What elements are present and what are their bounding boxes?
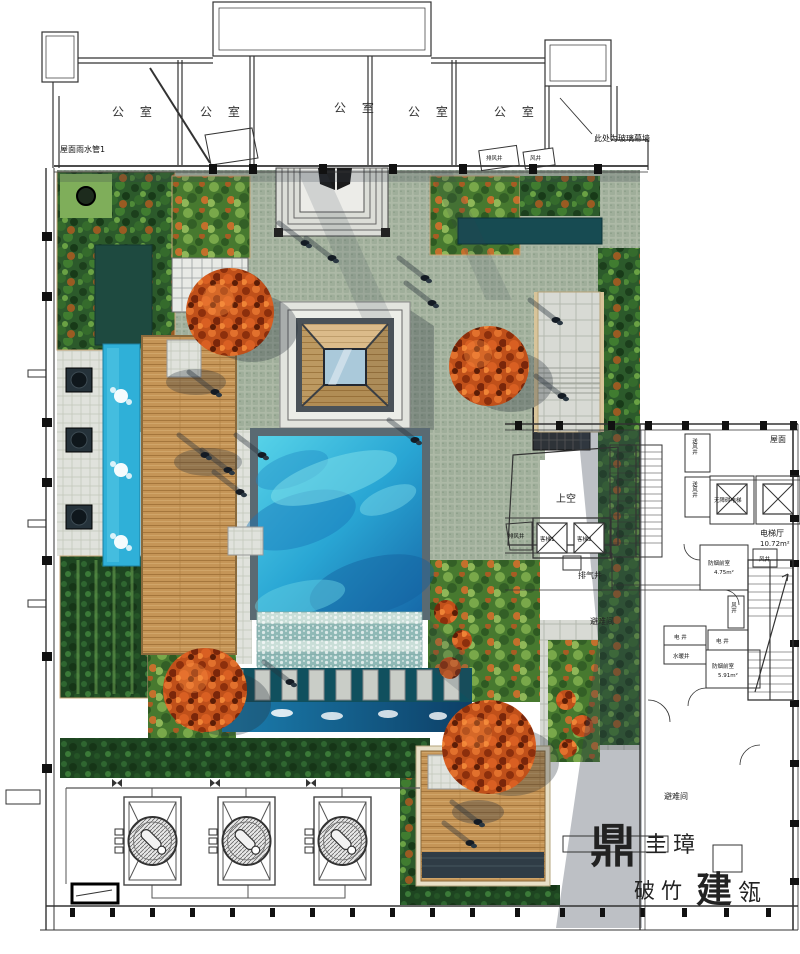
supply-shaft-2: 送风井	[691, 480, 698, 499]
electric-shaft-2: 电 井	[716, 637, 729, 645]
room-label-2: 公 室	[200, 104, 246, 119]
exhaust-shaft-label: 排风井	[508, 532, 525, 540]
void-label: 上空	[556, 492, 576, 505]
electric-shaft-1: 电 井	[674, 633, 687, 641]
watermark-phrase-2: 瓴	[738, 880, 761, 906]
hedge-parterre	[60, 556, 148, 698]
smoke-lobby-1-name: 防烟前室	[708, 559, 731, 567]
lobby-area: 10.72m²	[760, 540, 790, 548]
elevator-1-label: 客梯1	[540, 535, 555, 543]
site-plan-drawing: 公 室 公 室 公 室 公 室 公 室 屋面雨水管1 此处为玻璃幕墙	[0, 0, 800, 954]
plumbing-shaft-label: 水暖井	[673, 652, 690, 660]
cooling-tower-2	[209, 797, 275, 885]
columns-left	[6, 232, 52, 804]
refuge-room-2: 避难间	[664, 791, 688, 801]
smoke-lobby-2-name: 防烟前室	[712, 662, 735, 670]
watermark-phrase-red: 建	[696, 869, 732, 911]
room-label-1: 公 室	[112, 104, 158, 119]
watermark-seal: 鼎	[590, 819, 636, 873]
planter-urns	[66, 368, 92, 529]
vent-box-label-1: 排风井	[486, 154, 503, 162]
accessible-elevator-label: 无障碍电梯	[714, 496, 742, 504]
elevator-2-label: 客梯2	[577, 535, 592, 543]
water-tank	[72, 884, 118, 903]
top-building-plan	[42, 2, 648, 170]
water-cascade	[257, 612, 422, 668]
ticks-bottom	[70, 908, 771, 917]
cooling-tower-1	[115, 797, 181, 885]
fountain-channel	[103, 344, 140, 566]
top-room-labels: 公 室 公 室 公 室 公 室 公 室 屋面雨水管1 此处为玻璃幕墙	[60, 100, 650, 154]
smoke-lobby-2-area: 5.91m²	[718, 672, 738, 679]
curtain-wall-note: 此处为玻璃幕墙	[594, 133, 650, 143]
cooling-tower-3	[305, 797, 371, 885]
landscape-plan-canvas: 公 室 公 室 公 室 公 室 公 室 屋面雨水管1 此处为玻璃幕墙	[0, 0, 800, 954]
pyramid-skylight	[280, 302, 434, 430]
room-label-4: 公 室	[408, 104, 454, 119]
wind-shaft-1: 风井	[759, 555, 771, 563]
roof-label: 屋面	[770, 435, 786, 444]
refuge-room-1: 避难间	[590, 616, 614, 626]
lobby-name: 电梯厅	[760, 528, 784, 538]
rain-pipe-note: 屋面雨水管1	[60, 144, 105, 154]
smoke-lobby-1-area: 4.75m²	[714, 569, 734, 576]
supply-shaft-1: 送风井	[691, 437, 698, 456]
watermark-name: 圭璋	[645, 833, 701, 858]
pond-topleft	[95, 245, 152, 345]
room-label-5: 公 室	[494, 104, 540, 119]
exhaust-air-label: 排气井	[578, 570, 602, 580]
vent-box-label-2: 风井	[530, 154, 542, 162]
hedge-row-bottom	[60, 738, 430, 778]
equipment-yard	[58, 778, 420, 905]
watermark-phrase-1: 破竹	[634, 879, 688, 903]
room-label-3: 公 室	[334, 100, 380, 115]
wind-shaft-2: 风井	[730, 602, 737, 615]
